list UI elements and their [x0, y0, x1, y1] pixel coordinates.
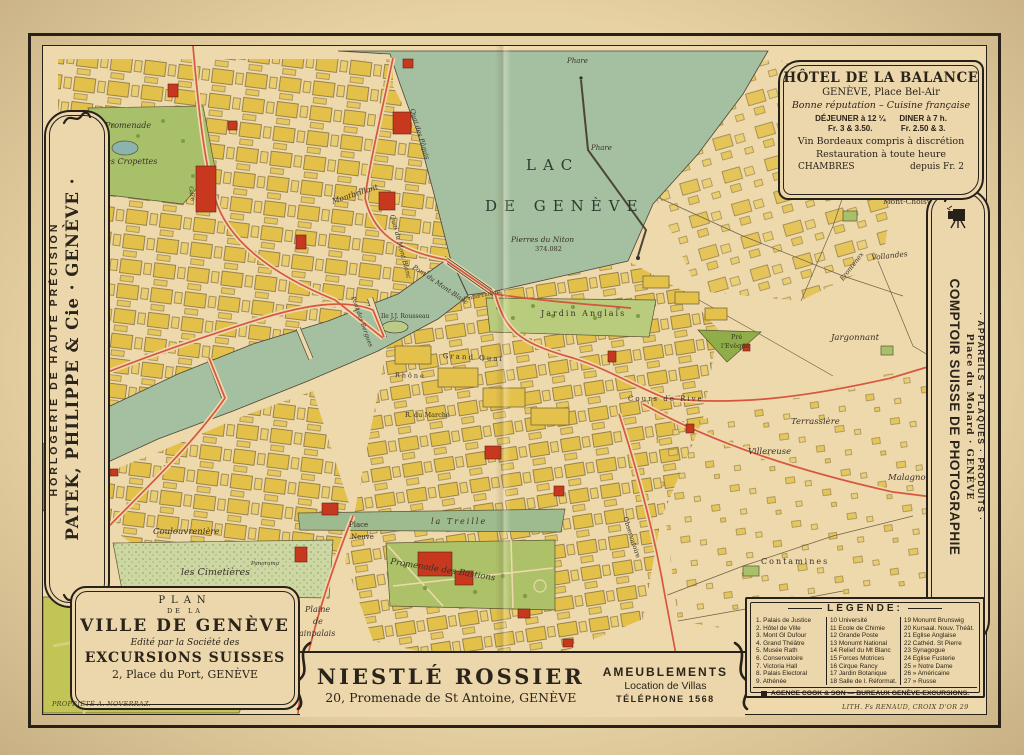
hotel-dejeuner-time: DÉJEUNER à 12 ¼	[815, 114, 885, 123]
hotel-chambres: CHAMBRES	[798, 162, 855, 172]
legend-footer: AGENCE COOK & SON — BUREAUX GENÈVE-EXCUR…	[753, 687, 977, 697]
legend-column-1: 1. Palais de Justice 2. Hôtel de Ville 3…	[753, 617, 826, 685]
legend-item: 10 Université	[830, 617, 897, 625]
legend-column-3: 19 Monumt Brunswig 20 Kursaal. Nouv. Thé…	[901, 617, 977, 685]
comptoir-address: Place du Molard · GENÈVE	[964, 202, 975, 632]
niestle-rossier-ad: NIESTLÉ ROSSIER 20, Promenade de St Anto…	[300, 651, 745, 717]
legend-item: 18 Salle de l. Réformat.	[830, 678, 897, 686]
hotel-balance-ad: HÔTEL DE LA BALANCE GENÈVE, Place Bel-Ai…	[778, 60, 984, 200]
hotel-diner-price: Fr. 2.50 & 3.	[901, 124, 945, 133]
comptoir-title: COMPTOIR SUISSE DE PHOTOGRAPHIE	[947, 202, 962, 632]
niestle-left: NIESTLÉ ROSSIER 20, Promenade de St Anto…	[317, 665, 585, 704]
legend-item: 19 Monumt Brunswig	[904, 617, 974, 625]
legend-dash-right	[908, 608, 942, 609]
legend-item: 16 Cirque Rancy	[830, 663, 897, 671]
patek-line2: PATEK, PHILIPPE & Cie · GENÈVE ·	[63, 124, 82, 594]
map-label-cours-de-rive: Cours de Rive	[628, 396, 704, 403]
hotel-chambres-price: depuis Fr. 2	[910, 162, 964, 172]
legend-item: 21 Eglise Anglaise	[904, 632, 974, 640]
niestle-ameublements: AMEUBLEMENTS	[603, 665, 728, 681]
legend-item: 5. Musée Rath	[756, 647, 823, 655]
plan-line1: PLAN	[72, 595, 298, 606]
legend-footer-text: AGENCE COOK & SON — BUREAUX GENÈVE-EXCUR…	[771, 690, 969, 697]
legend-item: 8. Palais Electoral	[756, 670, 823, 678]
credit-proprietor: PROPRIÉTÉ A. NOVERRAZ.	[52, 700, 151, 708]
map-label-rue-marche: R. du Marché	[405, 412, 450, 419]
legend-item: 9. Athénée	[756, 678, 823, 686]
map-label-de: de	[313, 618, 323, 626]
hotel-dejeuner-price: Fr. 3 & 3.50.	[828, 124, 872, 133]
map-label-neuve: Neuve	[351, 534, 374, 541]
map-label-villereuse: Villereuse	[748, 448, 791, 457]
legend-item: 26 » Américaine	[904, 670, 974, 678]
legend-item: 4. Grand Théâtre	[756, 640, 823, 648]
map-label-cimetieres: les Cimetières	[181, 568, 250, 578]
hotel-diner: DINER à 7 h. Fr. 2.50 & 3.	[899, 114, 947, 134]
hotel-diner-time: DINER à 7 h.	[899, 114, 947, 123]
comptoir-photographie-ad: · APPAREILS · PLAQUES · PRODUITS · Place…	[926, 188, 990, 646]
legend-item: 25 » Notre Dame	[904, 663, 974, 671]
hotel-restauration-line: Restauration à toute heure	[780, 149, 982, 160]
niestle-telephone: TÉLÉPHONE 1568	[603, 694, 728, 706]
map-label-promenade: Promenade	[105, 122, 151, 130]
legend-dash-left	[788, 608, 822, 609]
map-label-lac: LAC	[526, 158, 579, 173]
map-label-place: Place	[349, 522, 368, 529]
black-square-icon	[761, 691, 767, 696]
legend-item: 3. Mont Gl Dufour	[756, 632, 823, 640]
legend-item: 14 Relief du Mt Blanc	[830, 647, 897, 655]
legend-column-2: 10 Université 11 Ecole de Chimie 12 Gran…	[826, 617, 901, 685]
legend-item: 17 Jardin Botanique	[830, 670, 897, 678]
legend-item: 23 Synagogue	[904, 647, 974, 655]
legend-box: LÉGENDE: 1. Palais de Justice 2. Hôtel d…	[745, 597, 985, 698]
map-label-pierres-du-niton: Pierres du Niton	[511, 236, 574, 244]
map-label-jargonnant: Jargonnant	[831, 334, 879, 343]
plan-line4: Edité par la Société des	[72, 638, 298, 648]
comptoir-products-line: · APPAREILS · PLAQUES · PRODUITS ·	[976, 202, 986, 632]
plan-ville-ad: PLAN DE LA VILLE DE GENÈVE Edité par la …	[70, 586, 300, 710]
map-label-altitude: 374.082	[535, 246, 562, 253]
legend-item: 12 Grande Poste	[830, 632, 897, 640]
legend-item: 24 Eglise Fusterie	[904, 655, 974, 663]
legend-item: 15 Forces Motrices	[830, 655, 897, 663]
plan-line6: 2, Place du Port, GENÈVE	[72, 668, 298, 681]
legend-title: LÉGENDE:	[827, 603, 903, 614]
legend-item: 11 Ecole de Chimie	[830, 625, 897, 633]
legend-item: 20 Kursaal. Nouv. Théât.	[904, 625, 974, 633]
patek-philippe-ad: HORLOGERIE DE HAUTE PRÉCISION PATEK, PHI…	[44, 110, 110, 608]
plan-line2: DE LA	[72, 607, 298, 615]
map-label-phare-top: Phare	[567, 58, 588, 65]
legend-item: 22 Cathéd. St Pierre	[904, 640, 974, 648]
niestle-address: 20, Promenade de St Antoine, GENÈVE	[317, 690, 585, 705]
map-label-coulouvreniere: Coulouvrenière	[153, 528, 220, 537]
vintage-geneva-map-sheet: Phare LAC DE GENÈVE Phare Pierres du Nit…	[0, 0, 1024, 755]
art-nouveau-curl-icon	[62, 111, 92, 125]
map-label-eveque: l'Evêque	[721, 343, 749, 350]
plan-line3: VILLE DE GENÈVE	[72, 616, 298, 636]
niestle-right: AMEUBLEMENTS Location de Villas TÉLÉPHON…	[603, 665, 728, 706]
niestle-location: Location de Villas	[603, 680, 728, 694]
map-label-plaine: Plaine	[305, 606, 330, 614]
niestle-title: NIESTLÉ ROSSIER	[317, 665, 585, 688]
plan-line5: EXCURSIONS SUISSES	[72, 650, 298, 666]
map-label-phare-jetty: Phare	[591, 145, 612, 152]
credit-lithographer: LITH. Fs RENAUD, CROIX D'OR 29	[842, 703, 969, 711]
hotel-wine-line: Vin Bordeaux compris à discrétion	[780, 136, 982, 147]
legend-item: 27 » Russe	[904, 678, 974, 686]
map-label-terrassiere: Terrassière	[791, 418, 840, 427]
map-label-gare: Gare	[187, 186, 195, 201]
hotel-subtitle: GENÈVE, Place Bel-Air	[780, 87, 982, 98]
legend-item: 6. Conservatoire	[756, 655, 823, 663]
map-label-contamines: Contamines	[761, 558, 829, 566]
hotel-dejeuner: DÉJEUNER à 12 ¼ Fr. 3 & 3.50.	[815, 114, 885, 134]
patek-line1: HORLOGERIE DE HAUTE PRÉCISION	[48, 124, 60, 594]
map-label-de-geneve: DE GENÈVE	[485, 199, 645, 214]
legend-item: 7. Victoria Hall	[756, 663, 823, 671]
map-label-pre: Pré	[731, 334, 742, 341]
map-label-malagnou: Malagnou	[888, 474, 931, 483]
legend-title-row: LÉGENDE:	[753, 603, 977, 614]
hotel-title: HÔTEL DE LA BALANCE	[780, 70, 982, 86]
hotel-tagline: Bonne réputation – Cuisine française	[780, 100, 982, 111]
rousseau-island	[382, 321, 408, 333]
map-label-rhone: Rhône	[395, 372, 426, 380]
legend-item: 13 Monumt National	[830, 640, 897, 648]
map-label-panorama: Panorama	[251, 562, 279, 568]
legend-item: 1. Palais de Justice	[756, 617, 823, 625]
map-label-treille: la Treille	[431, 518, 487, 526]
legend-item: 2. Hôtel de Ville	[756, 625, 823, 633]
map-label-jardin-anglais: Jardin Anglais	[541, 310, 626, 318]
map-label-ile-rousseau: Ile J.J. Rousseau	[381, 314, 430, 320]
